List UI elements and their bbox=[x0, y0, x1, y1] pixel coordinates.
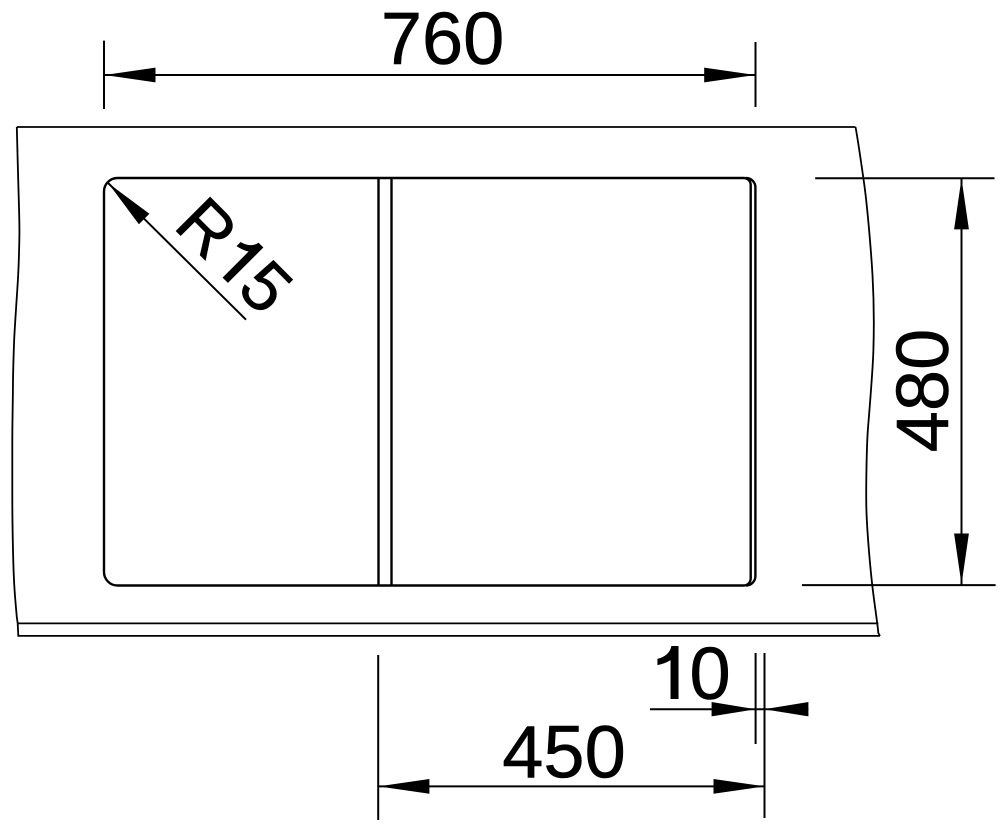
svg-text:480: 480 bbox=[881, 329, 964, 452]
svg-text:450: 450 bbox=[502, 710, 625, 793]
svg-text:0: 0 bbox=[690, 632, 731, 715]
svg-text:760: 760 bbox=[381, 0, 504, 80]
